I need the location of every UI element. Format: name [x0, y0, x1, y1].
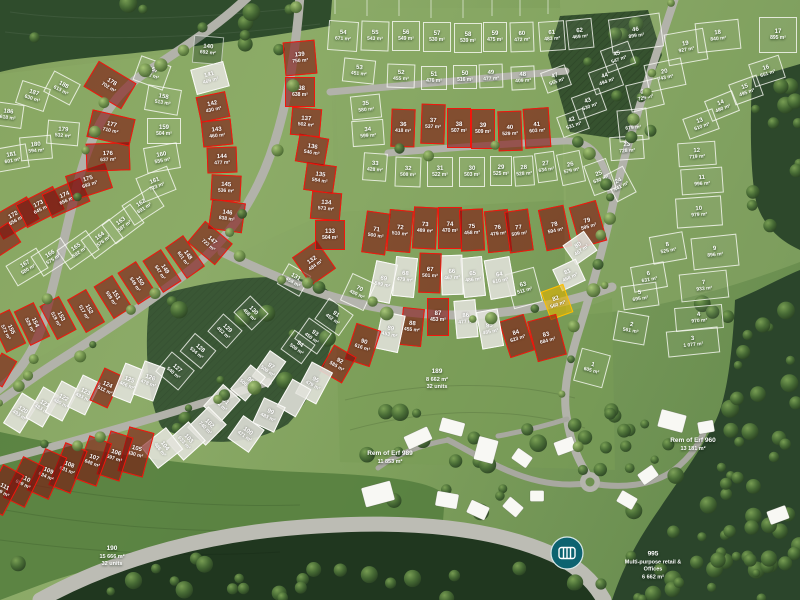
rem-erf-989: Rem of Erf 98911 853 m² — [367, 450, 413, 466]
retail-995: 995Multi-purpose retail &Offices6 662 m² — [625, 550, 682, 581]
rem-erf-960: Rem of Erf 96013 181 m² — [670, 437, 716, 453]
parcel-190: 19015 666 m²32 units — [99, 545, 124, 569]
estate-site-plan: 1605 m²2561 m²31 077 m²4970 m²5695 m²663… — [0, 0, 800, 600]
parcel-labels-layer: 1898 662 m²32 units19015 666 m²32 unitsR… — [0, 0, 800, 600]
parcel-189: 1898 662 m²32 units — [426, 368, 448, 392]
